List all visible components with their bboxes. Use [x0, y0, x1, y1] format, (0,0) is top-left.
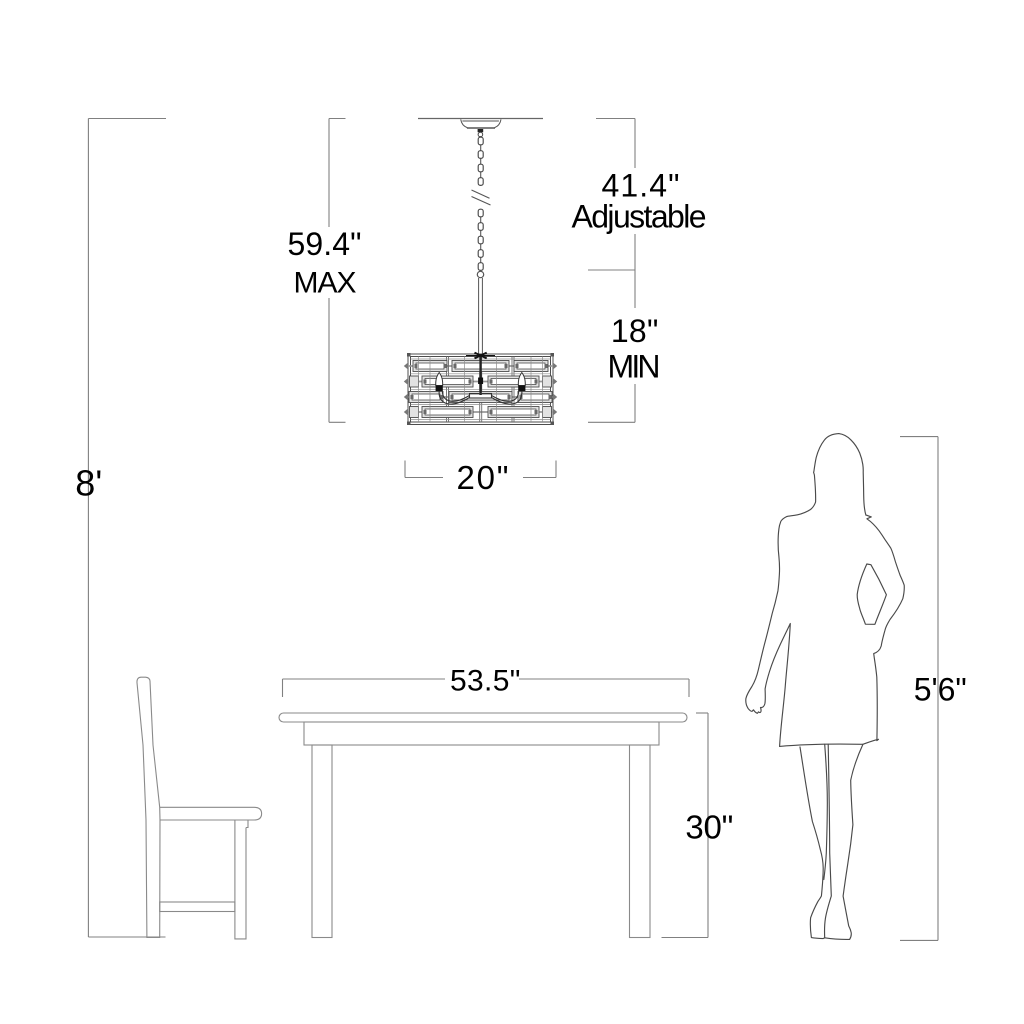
- svg-text:59.4": 59.4": [288, 226, 362, 262]
- svg-text:MIN: MIN: [608, 349, 661, 385]
- svg-text:18": 18": [611, 313, 659, 349]
- svg-text:5'6": 5'6": [914, 672, 967, 708]
- svg-text:8': 8': [75, 462, 102, 503]
- svg-text:20": 20": [457, 459, 509, 496]
- svg-text:MAX: MAX: [294, 267, 357, 300]
- svg-text:53.5": 53.5": [450, 664, 521, 697]
- svg-text:30": 30": [685, 808, 733, 845]
- svg-text:Adjustable: Adjustable: [572, 199, 707, 235]
